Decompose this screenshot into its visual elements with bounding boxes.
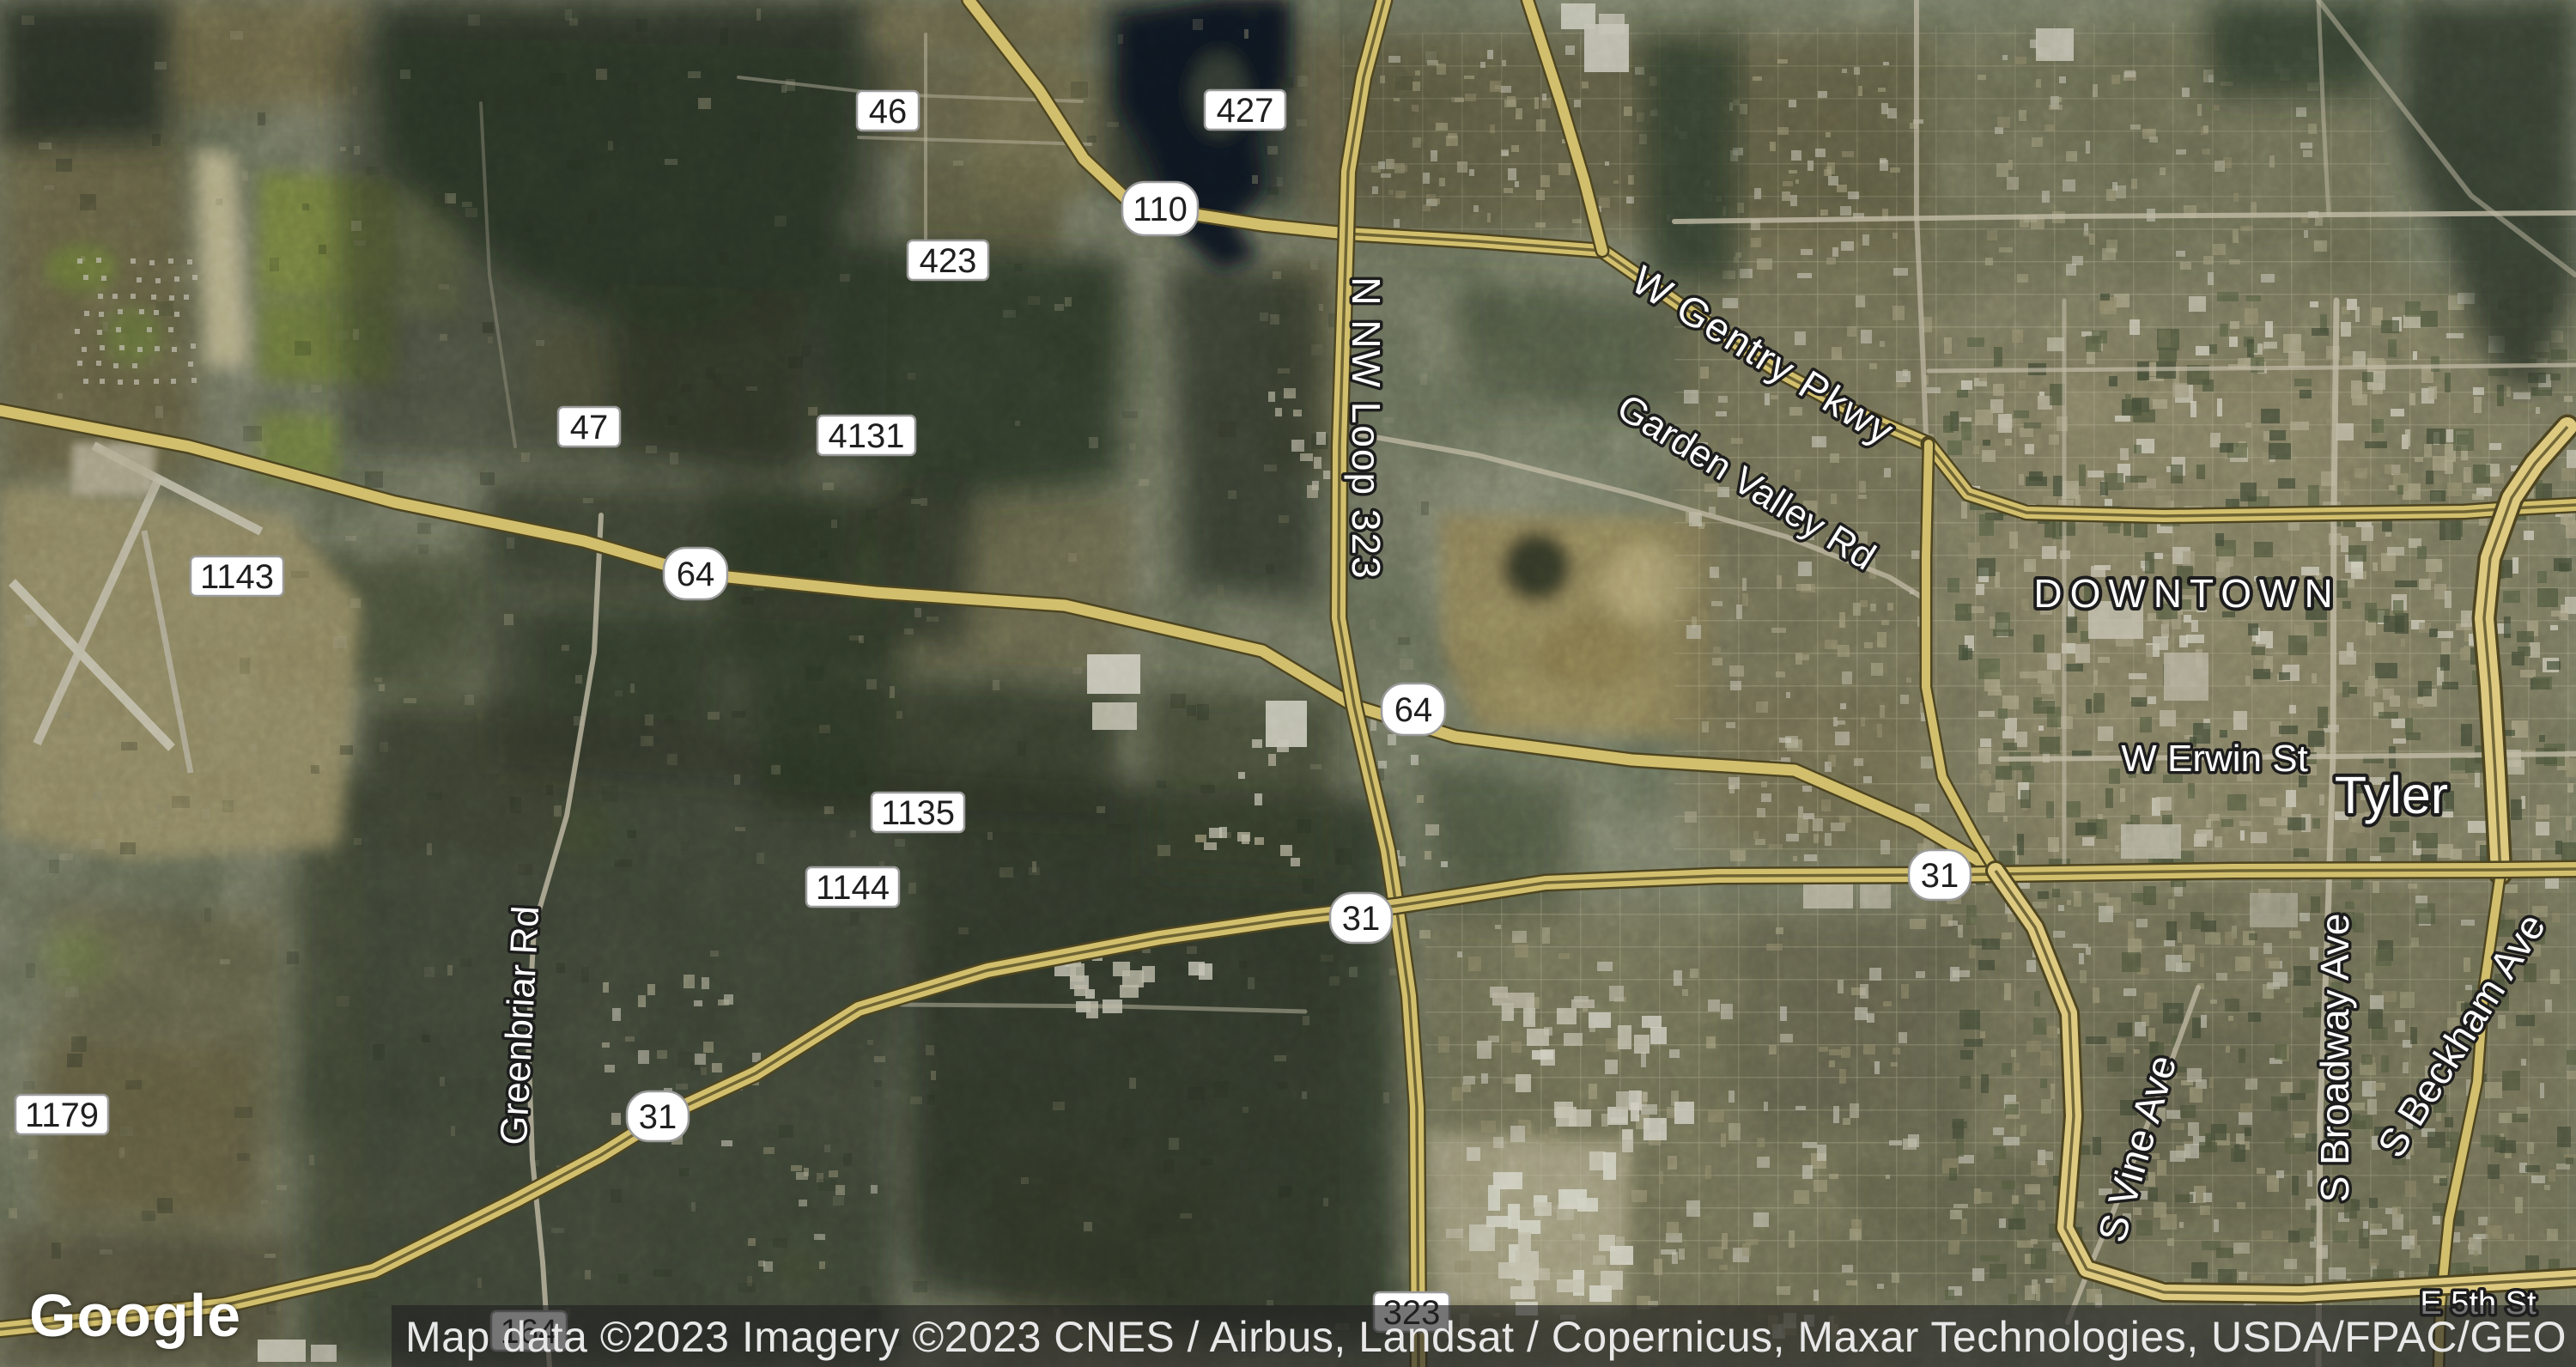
svg-text:1144: 1144 xyxy=(816,869,890,907)
svg-text:31: 31 xyxy=(1342,900,1381,938)
svg-text:110: 110 xyxy=(1133,191,1188,228)
svg-text:N NW Loop 323: N NW Loop 323 xyxy=(1344,276,1388,580)
svg-text:Tyler: Tyler xyxy=(2335,766,2448,824)
svg-text:423: 423 xyxy=(920,242,977,280)
svg-text:1135: 1135 xyxy=(881,794,955,832)
svg-text:4131: 4131 xyxy=(829,417,905,455)
svg-text:1143: 1143 xyxy=(200,558,274,596)
svg-text:S Broadway Ave: S Broadway Ave xyxy=(2312,914,2357,1203)
svg-text:427: 427 xyxy=(1217,92,1274,130)
svg-text:Map data ©2023 Imagery ©2023 C: Map data ©2023 Imagery ©2023 CNES / Airb… xyxy=(405,1313,2567,1361)
svg-text:47: 47 xyxy=(570,409,609,447)
svg-text:64: 64 xyxy=(677,556,715,593)
svg-text:64: 64 xyxy=(1394,691,1433,729)
svg-text:DOWNTOWN: DOWNTOWN xyxy=(2033,571,2340,616)
svg-text:W Erwin St: W Erwin St xyxy=(2121,738,2308,780)
svg-text:Google: Google xyxy=(29,1282,241,1349)
svg-text:31: 31 xyxy=(639,1098,677,1136)
svg-text:46: 46 xyxy=(869,93,908,131)
svg-text:1179: 1179 xyxy=(25,1097,99,1134)
svg-text:31: 31 xyxy=(1921,857,1959,895)
